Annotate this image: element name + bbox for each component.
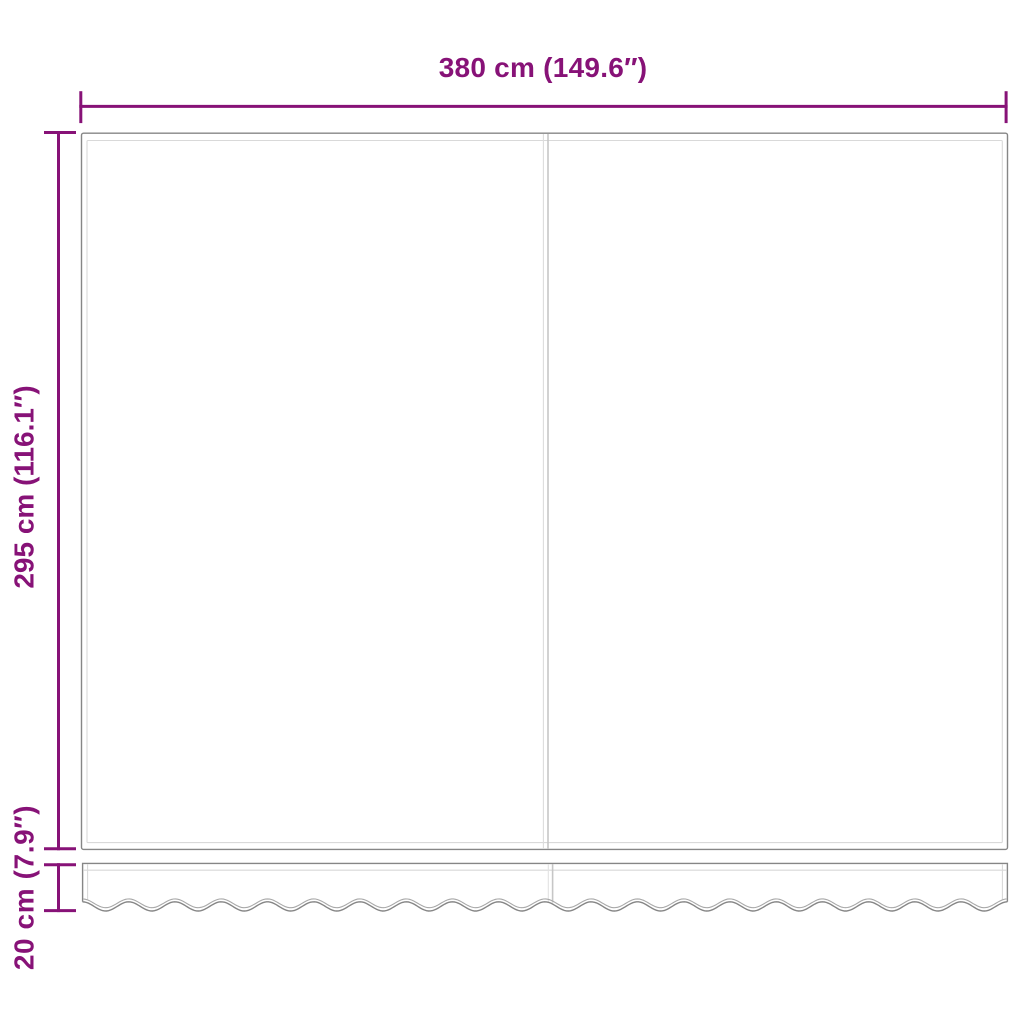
svg-text:380 cm (149.6″): 380 cm (149.6″) <box>439 52 648 83</box>
svg-text:295 cm (116.1″): 295 cm (116.1″) <box>9 385 40 588</box>
svg-text:20 cm (7.9″): 20 cm (7.9″) <box>9 805 40 970</box>
